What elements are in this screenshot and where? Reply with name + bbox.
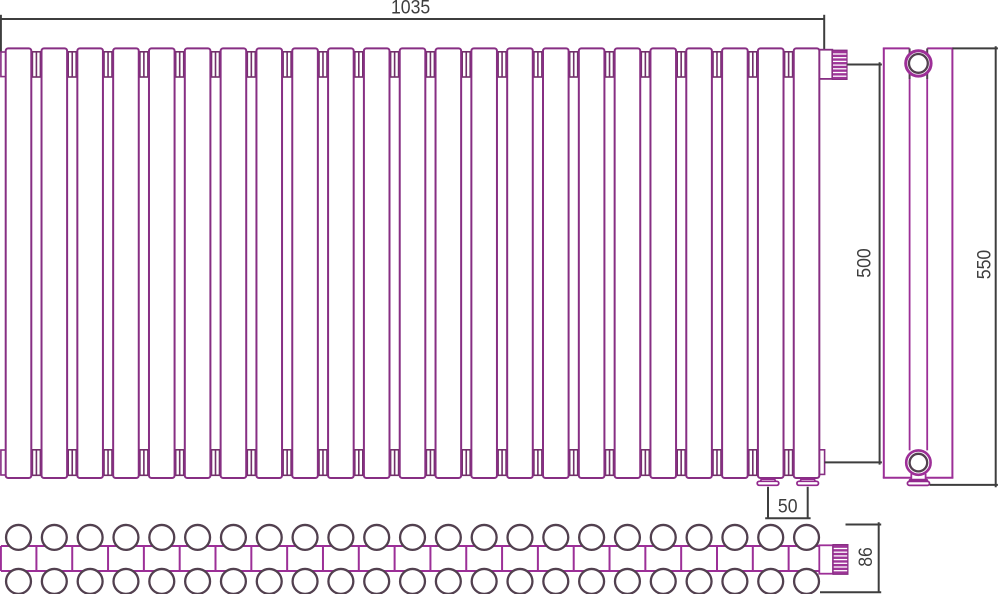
- svg-text:1035: 1035: [391, 0, 430, 18]
- svg-text:500: 500: [853, 248, 875, 277]
- svg-text:550: 550: [973, 250, 995, 279]
- svg-text:50: 50: [778, 495, 798, 517]
- svg-text:86: 86: [854, 547, 876, 567]
